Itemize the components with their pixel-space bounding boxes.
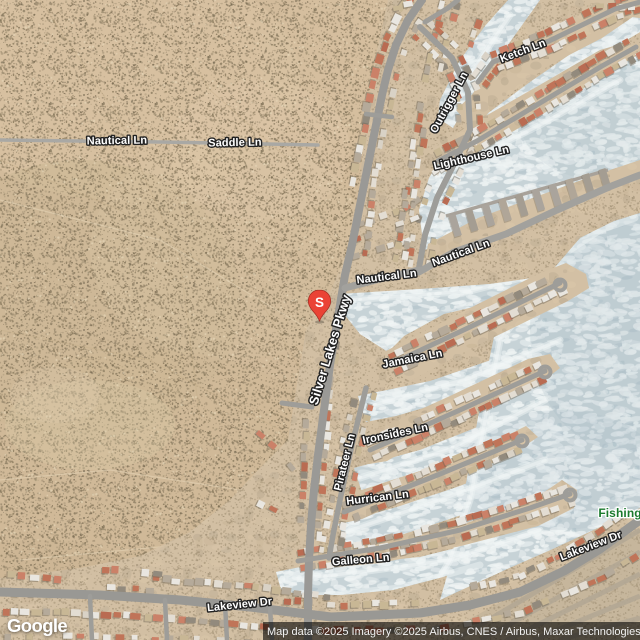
svg-text:Nautical Ln: Nautical Ln <box>87 134 148 147</box>
svg-text:S: S <box>315 295 324 310</box>
svg-text:Map data ©2025 Imagery ©2025 A: Map data ©2025 Imagery ©2025 Airbus, CNE… <box>267 626 640 638</box>
svg-text:Fishing: Fishing <box>598 506 640 520</box>
svg-text:Google: Google <box>7 615 67 636</box>
svg-text:Saddle Ln: Saddle Ln <box>208 137 262 150</box>
